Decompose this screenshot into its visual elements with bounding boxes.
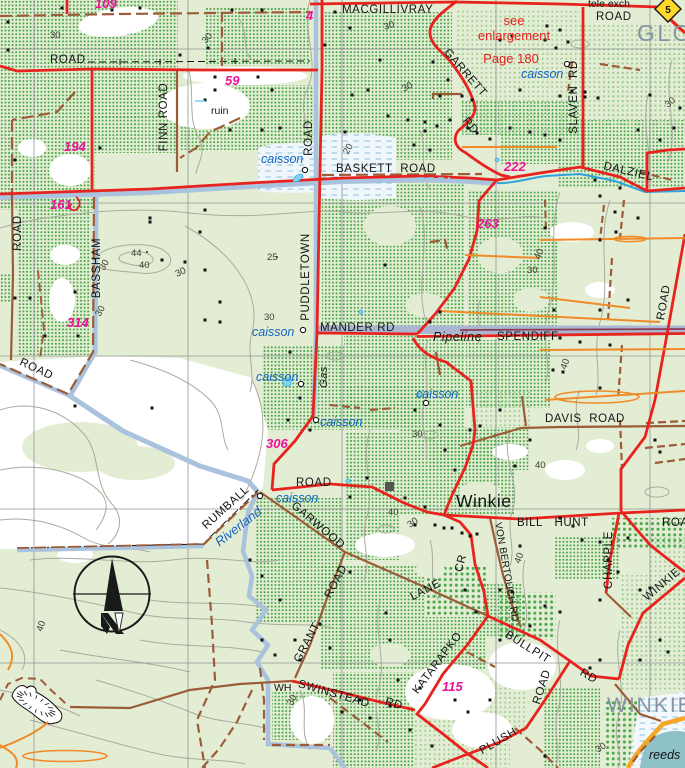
svg-text:FINN ROAD: FINN ROAD [158,83,170,152]
svg-text:PUDDLETOWN: PUDDLETOWN [300,233,312,321]
svg-text:caisson: caisson [416,387,458,401]
svg-text:caisson: caisson [276,491,318,505]
svg-text:30: 30 [412,429,423,440]
svg-text:Winkie: Winkie [456,491,512,511]
svg-text:DAVIS ROAD: DAVIS ROAD [545,413,625,425]
svg-text:enlargement: enlargement [478,28,551,43]
svg-text:Page 180: Page 180 [483,51,539,66]
svg-text:ruin: ruin [211,105,229,117]
svg-text:314: 314 [67,315,89,330]
svg-text:WINKIE: WINKIE [607,694,685,717]
svg-text:30: 30 [264,312,275,323]
svg-text:MANDER RD: MANDER RD [320,322,395,334]
svg-text:caisson: caisson [261,152,303,166]
svg-text:reeds: reeds [649,748,680,762]
svg-text:ROAD: ROAD [50,54,86,66]
svg-text:Gas: Gas [318,366,330,388]
svg-text:SLAVEN RD: SLAVEN RD [568,60,580,134]
svg-text:ROAD: ROAD [303,120,315,156]
svg-text:SPENDIFF: SPENDIFF [497,331,559,343]
svg-text:161: 161 [50,197,72,212]
svg-text:GLO: GLO [637,20,685,46]
svg-text:caisson: caisson [252,325,294,339]
svg-text:59: 59 [225,73,240,88]
svg-text:194: 194 [64,139,86,154]
svg-text:4: 4 [305,8,314,23]
svg-text:109: 109 [95,0,117,11]
svg-text:ROAD: ROAD [12,215,24,251]
svg-text:BILL HUNT: BILL HUNT [517,517,589,529]
svg-text:WH: WH [274,682,292,694]
svg-text:caisson: caisson [256,370,298,384]
svg-text:tele exch: tele exch [588,0,630,10]
svg-text:ROAD: ROAD [662,517,685,529]
svg-text:caisson: caisson [521,67,563,81]
svg-text:40: 40 [388,507,399,518]
svg-text:ROAD: ROAD [296,477,332,489]
svg-text:40: 40 [535,460,546,471]
svg-text:30: 30 [527,265,538,276]
svg-text:5: 5 [665,5,671,16]
svg-text:CHAPPLE: CHAPPLE [603,531,615,589]
svg-text:see: see [504,13,525,28]
svg-text:MACGILLIVRAY: MACGILLIVRAY [342,4,433,16]
svg-text:BASKETT ROAD: BASKETT ROAD [336,163,436,175]
svg-text:115: 115 [442,679,463,694]
svg-text:263: 263 [476,216,499,231]
svg-text:Pipeline: Pipeline [433,330,482,344]
svg-text:40: 40 [139,260,150,271]
svg-text:ROAD: ROAD [596,11,632,23]
svg-text:44: 44 [131,248,142,259]
svg-text:25: 25 [267,252,278,263]
svg-text:30: 30 [50,30,61,41]
svg-text:222: 222 [503,159,526,174]
svg-text:306: 306 [266,436,288,451]
svg-text:caisson: caisson [320,415,362,429]
